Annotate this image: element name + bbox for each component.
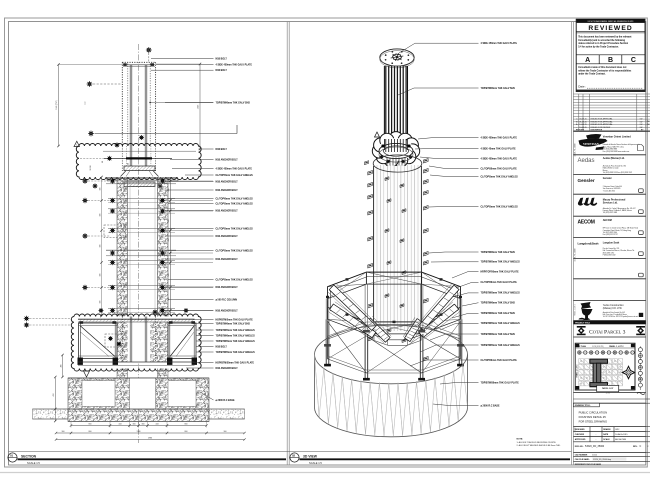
svg-text:2986: 2986: [148, 437, 152, 439]
svg-text:800: 800: [89, 431, 92, 433]
svg-text:Aedas: Aedas: [578, 158, 595, 164]
svg-text:M10 ANCHOR BOLT: M10 ANCHOR BOLT: [216, 309, 239, 312]
svg-text:CL/TOP/5mm THK GALV ANGLES: CL/TOP/5mm THK GALV ANGLES: [216, 278, 254, 281]
svg-text:500: 500: [168, 220, 170, 223]
svg-text:Venetian Orient Limited: Venetian Orient Limited: [603, 136, 631, 139]
svg-text:A: A: [585, 57, 590, 64]
svg-text:500: 500: [99, 274, 101, 277]
svg-text:4 SIDE 450mm THK GALV PLATE: 4 SIDE 450mm THK GALV PLATE: [481, 157, 518, 160]
svg-text:CL/TOP/5mm THK GALV ANGLES: CL/TOP/5mm THK GALV ANGLES: [481, 205, 519, 208]
svg-text:TOP/BTM/6mm THK GALV SHS: TOP/BTM/6mm THK GALV SHS: [481, 251, 516, 254]
svg-text:CL/TOP/50mm THK GALV PLATE: CL/TOP/50mm THK GALV PLATE: [481, 359, 518, 362]
svg-text:status referred to in Pro: status referred to in Project Procedure …: [578, 42, 629, 45]
svg-text:LWC: LWC: [615, 429, 620, 431]
svg-text:PANEL 1, LOT 3: PANEL 1, LOT 3: [576, 365, 579, 378]
svg-text:TOP/BTM/6mm THK GALV SHS: TOP/BTM/6mm THK GALV SHS: [481, 87, 516, 90]
svg-text:VENETIAN: VENETIAN: [583, 142, 600, 146]
svg-text:Langdon Seah: Langdon Seah: [603, 242, 620, 245]
svg-text:90 190: 90 190: [90, 165, 92, 170]
svg-text:450: 450: [53, 394, 55, 397]
svg-text:CL/TOP/50mm THK GALV PLATE: CL/TOP/50mm THK GALV PLATE: [481, 167, 518, 170]
svg-text:M10 ANCHOR BOLT: M10 ANCHOR BOLT: [216, 367, 239, 370]
svg-text:under the Trade Contract.: under the Trade Contract.: [578, 73, 606, 76]
svg-text:HRP/TOP/50mm THK GALV PLATE: HRP/TOP/50mm THK GALV PLATE: [481, 270, 520, 273]
svg-text:Tel: (853) 2833 1133 Fax: (85: Tel: (853) 2833 1133 Fax: (853) 2833 152…: [603, 172, 632, 174]
svg-text:444: 444: [119, 423, 122, 425]
svg-text:N.T.S (FOR P3): N.T.S (FOR P3): [592, 346, 604, 348]
svg-text:51520: 51520: [592, 455, 597, 457]
svg-text:TOP/BTM/5mm THK GALV ANGLES: TOP/BTM/5mm THK GALV ANGLES: [481, 292, 521, 295]
svg-text:Langdon&Seah: Langdon&Seah: [578, 241, 599, 245]
svg-text:SCALE: SCALE: [603, 438, 610, 441]
svg-text:APPROVED: APPROVED: [575, 438, 586, 441]
svg-text:TOP/BTM/5mm THK GALV ANGLES: TOP/BTM/5mm THK GALV ANGLES: [481, 322, 521, 325]
svg-text:500: 500: [168, 239, 170, 242]
svg-text:Consultant review of this: Consultant review of this document does …: [578, 66, 626, 69]
svg-text:AECOM: AECOM: [578, 219, 595, 225]
svg-text:NOTE:: NOTE:: [517, 439, 524, 441]
svg-text:500: 500: [99, 245, 101, 248]
svg-text:M10 BOLT: M10 BOLT: [216, 346, 228, 348]
svg-text:51520_FD_35000: 51520_FD_35000: [585, 445, 605, 448]
svg-text:500: 500: [168, 274, 170, 277]
svg-text:500: 500: [168, 298, 170, 301]
svg-text:800: 800: [185, 423, 188, 425]
svg-text:300: 300: [142, 423, 145, 425]
svg-text:TOP/BTM/5mm THK GALV ANGLES: TOP/BTM/5mm THK GALV ANGLES: [216, 351, 256, 354]
svg-text:01: 01: [10, 453, 14, 457]
svg-text:Consultant(s) and is accord: Consultant(s) and is accorded the follow…: [578, 39, 625, 42]
svg-text:800: 800: [185, 431, 188, 433]
svg-text:CL/TOP/6mm THK GALV ANGLES: CL/TOP/6mm THK GALV ANGLES: [216, 197, 254, 200]
svg-text:(Macau) CO. LTD.: (Macau) CO. LTD.: [603, 307, 623, 310]
svg-text:⌀ 500 R.C COLUMN: ⌀ 500 R.C COLUMN: [216, 298, 238, 301]
svg-text:PUBLIC CIRCULATION: PUBLIC CIRCULATION: [579, 410, 608, 414]
svg-text:CAD FILE NAME:: CAD FILE NAME:: [575, 458, 590, 461]
svg-text:CL/TOP/5mm THK GALV ANGLES: CL/TOP/5mm THK GALV ANGLES: [216, 227, 254, 230]
svg-text:500: 500: [168, 189, 170, 192]
svg-text:LW: LW: [647, 121, 650, 123]
svg-text:M10 ANCHOR BOLT: M10 ANCHOR BOLT: [216, 209, 239, 212]
svg-text:F (853) 2833 1532: F (853) 2833 1532: [603, 255, 616, 257]
svg-text:LW: LW: [640, 119, 643, 121]
svg-text:5.4 for action by the Tra: 5.4 for action by the Trade Contractor.: [578, 46, 619, 49]
svg-text:1386: 1386: [137, 431, 141, 433]
svg-text:M10 ANCHOR BOLT: M10 ANCHOR BOLT: [216, 235, 239, 238]
svg-text:CL/TOP/5mm THK GALV ANGLES: CL/TOP/5mm THK GALV ANGLES: [216, 174, 254, 177]
svg-text:TYP: TYP: [85, 101, 87, 104]
svg-text:4 SIDE 450mm THK GALV PLATE: 4 SIDE 450mm THK GALV PLATE: [481, 136, 518, 139]
svg-text:ISSUED FOR APPROVAL: ISSUED FOR APPROVAL: [591, 123, 613, 126]
svg-text:M10 ANCHOR BOLT: M10 ANCHOR BOLT: [216, 189, 239, 192]
svg-text:B: B: [608, 57, 613, 64]
svg-text:Gensler: Gensler: [578, 178, 595, 183]
svg-text:CL/TOP/5mm THK GALV ANGLES: CL/TOP/5mm THK GALV ANGLES: [216, 202, 254, 205]
svg-text:Services Ltd.: Services Ltd.: [603, 201, 618, 204]
svg-text:40: 40: [128, 163, 130, 165]
svg-text:TOP/BTM/5mm THK GALV ANGLES: TOP/BTM/5mm THK GALV ANGLES: [216, 340, 256, 343]
svg-text:LW: LW: [647, 124, 650, 126]
svg-text:Tel: (853) 2882 8888: Tel: (853) 2882 8888: [603, 149, 617, 151]
svg-text:21-08-15: 21-08-15: [579, 121, 586, 123]
svg-text:4 SIDE 450mm THK GALV PLATE: 4 SIDE 450mm THK GALV PLATE: [216, 167, 253, 170]
svg-text:51520_FD_35000: 51520_FD_35000: [575, 144, 577, 157]
svg-text:M10 BOLT: M10 BOLT: [216, 70, 228, 72]
svg-text:M10 BOLT: M10 BOLT: [216, 149, 228, 151]
svg-text:REFERENCE DWG FILE NAME: REFERENCE DWG FILE NAME: [575, 463, 602, 466]
svg-text:03-09-15: 03-09-15: [579, 119, 586, 121]
svg-text:AS SHOWN: AS SHOWN: [615, 438, 626, 441]
svg-text:SCALE 1:5: SCALE 1:5: [309, 461, 322, 465]
svg-text:1345 (TYP): 1345 (TYP): [56, 100, 58, 110]
svg-text:PROJECT TITLE: PROJECT TITLE: [575, 323, 590, 325]
svg-text:CL/TOP/5mm THK GALV ANGLES: CL/TOP/5mm THK GALV ANGLES: [481, 175, 519, 178]
svg-text:AECOM: AECOM: [603, 219, 612, 222]
svg-text:Tel: (853) 2875 3088: Tel: (853) 2875 3088: [603, 212, 617, 214]
svg-text:TOP/BTM/6mm THK GALV ANGLES: TOP/BTM/6mm THK GALV ANGLES: [216, 334, 256, 337]
svg-text:14-08-15: 14-08-15: [579, 124, 586, 126]
svg-text:TOP/BTM/5mm THK GALV ANGLES: TOP/BTM/5mm THK GALV ANGLES: [481, 261, 521, 264]
svg-text:SECTION: SECTION: [21, 454, 37, 458]
svg-text:300: 300: [62, 431, 65, 433]
svg-text:This document has been rev: This document has been reviewed by the r…: [578, 35, 631, 38]
svg-text:TOP/BTM/5mm THK GALV ANGLES: TOP/BTM/5mm THK GALV ANGLES: [216, 329, 256, 332]
svg-text:TOP/BTM/6mm THK GALV SHS: TOP/BTM/6mm THK GALV SHS: [216, 322, 251, 325]
svg-text:300: 300: [60, 365, 62, 368]
svg-text:M10 BOLT: M10 BOLT: [216, 58, 228, 60]
svg-text:TOP/BTM/50mm THK GALV PLATE: TOP/BTM/50mm THK GALV PLATE: [481, 381, 520, 384]
svg-text:DWG NO:: DWG NO:: [575, 446, 584, 448]
svg-text:M10 ANCHOR BOLT: M10 ANCHOR BOLT: [216, 158, 239, 161]
svg-text:300: 300: [224, 431, 227, 433]
svg-text:Macau: Macau: [603, 170, 608, 172]
svg-text:LW: LW: [640, 121, 643, 123]
svg-text:relieve the Trade Contracto: relieve the Trade Contractor of its resp…: [578, 69, 632, 72]
svg-text:3D VIEW: 3D VIEW: [303, 454, 318, 458]
svg-text:51520: 51520: [575, 428, 577, 433]
svg-text:DATE: DATE: [603, 433, 609, 436]
svg-text:TOP/BTM/6mm THK GALV SHS: TOP/BTM/6mm THK GALV SHS: [216, 101, 251, 104]
svg-text:DRAWING TITLE:: DRAWING TITLE:: [575, 404, 591, 407]
svg-text:ISSUED FOR APPROVAL: ISSUED FOR APPROVAL: [591, 118, 613, 121]
svg-text:4 SIDE 450mm THK GALV PLATE: 4 SIDE 450mm THK GALV PLATE: [481, 42, 518, 45]
svg-text:M10 ANCHOR BOLT: M10 ANCHOR BOLT: [216, 180, 239, 183]
svg-text:Fax: (852) 3922 9797: Fax: (852) 3922 9797: [603, 234, 618, 236]
svg-text:REVIEWED: REVIEWED: [588, 25, 632, 32]
svg-text:DESCRIPTION: DESCRIPTION: [591, 130, 603, 132]
svg-text:300: 300: [133, 423, 136, 425]
svg-text:TOP/BTM/6mm THK GALV SHS: TOP/BTM/6mm THK GALV SHS: [481, 333, 516, 336]
svg-text:CL/TOP/5mm THK GALV ANGLES: CL/TOP/5mm THK GALV ANGLES: [216, 249, 254, 252]
svg-text:M10 ANCHOR BOLT: M10 ANCHOR BOLT: [216, 286, 239, 289]
svg-text:444: 444: [156, 423, 159, 425]
svg-text:HOP/BTM/50mm THK GALV PLATE: HOP/BTM/50mm THK GALV PLATE: [216, 361, 255, 364]
svg-text:500: 500: [99, 214, 101, 217]
svg-text:REV:: REV:: [633, 446, 638, 448]
svg-text:Tel: (852) 3922 9000: Tel: (852) 3922 9000: [603, 232, 617, 234]
svg-text:51520_FD_35000.dwg: 51520_FD_35000.dwg: [593, 459, 611, 461]
svg-text:2. ALL FILLET WELDED SHOULD B: 2. ALL FILLET WELDED SHOULD BE 3mm THK.: [517, 444, 561, 447]
svg-text:02: 02: [292, 453, 296, 457]
svg-text:Gensler: Gensler: [603, 177, 612, 180]
svg-text:LW: LW: [640, 124, 643, 126]
svg-text:T 1.415.433.3700: T 1.415.433.3700: [603, 190, 615, 192]
svg-text:Fax: (853) 2882 8889 www.san: Fax: (853) 2882 8889 www.sands.com: [603, 151, 630, 153]
svg-text:Rua do Campo No. 202,: Rua do Campo No. 202,: [603, 248, 620, 250]
svg-text:TOP/BTM/5mm THK GALV ANGLES: TOP/BTM/5mm THK GALV ANGLES: [481, 344, 521, 347]
svg-text:Aedas (Macau) Ltd.: Aedas (Macau) Ltd.: [603, 157, 625, 160]
svg-text:FOUNTAIN DETAIL 25: FOUNTAIN DETAIL 25: [579, 415, 607, 419]
svg-text:DRAWN: DRAWN: [603, 428, 611, 431]
svg-text:SCALE 1:5: SCALE 1:5: [27, 461, 40, 465]
svg-text:4 SIDE 450mm THK GALV PLATE: 4 SIDE 450mm THK GALV PLATE: [216, 63, 253, 66]
svg-text:FOR STEEL DRAWING: FOR STEEL DRAWING: [579, 420, 607, 424]
svg-text:CAD NUMBER:: CAD NUMBER:: [575, 454, 588, 457]
svg-text:PANEL 1, LOT 2: PANEL 1, LOT 2: [609, 345, 623, 348]
svg-text:14-AUG-2015: 14-AUG-2015: [615, 433, 628, 436]
svg-text:(853) 2833 1710: (853) 2833 1710: [603, 252, 614, 254]
svg-text:HOP/BTM/5mm THK GALV PLATE: HOP/BTM/5mm THK GALV PLATE: [216, 318, 254, 321]
svg-text:TOP/BTM/6mm THK GALV SHS: TOP/BTM/6mm THK GALV SHS: [481, 312, 516, 315]
svg-text:90: 90: [102, 161, 104, 163]
svg-text:4 SIDE 45mm THK GALV PLATE: 4 SIDE 45mm THK GALV PLATE: [481, 147, 517, 150]
svg-text:C: C: [631, 57, 636, 64]
svg-text:CHECKED: CHECKED: [575, 434, 585, 436]
svg-text:1. ALL BOLT SHOULD BE FIXING: 1. ALL BOLT SHOULD BE FIXING ON SITE.: [517, 441, 557, 444]
svg-text:CL/TOP/50mm THK GALV PLATE: CL/TOP/50mm THK GALV PLATE: [481, 281, 518, 284]
svg-text:M10 ANCHOR BOLT: M10 ANCHOR BOLT: [216, 258, 239, 261]
svg-text:1: 1: [76, 145, 77, 147]
svg-text:10.7M: 10.7M: [606, 392, 611, 394]
svg-text:TOP/BTM/6mm THK GALV SHS: TOP/BTM/6mm THK GALV SHS: [481, 302, 516, 305]
svg-text:C: C: [640, 445, 642, 448]
svg-text:51520_FD_35000: 51520_FD_35000: [575, 249, 577, 262]
svg-text:⌀ 2000 R.C BASE: ⌀ 2000 R.C BASE: [216, 399, 235, 402]
svg-text:500: 500: [99, 301, 101, 304]
svg-text:⌀ 2000 R.C BASE: ⌀ 2000 R.C BASE: [481, 404, 500, 407]
svg-text:ISSUED FOR APPROVAL: ISSUED FOR APPROVAL: [591, 120, 613, 123]
svg-text:Date :: Date :: [578, 85, 586, 89]
svg-text:500: 500: [99, 188, 101, 191]
svg-text:800: 800: [89, 423, 92, 425]
